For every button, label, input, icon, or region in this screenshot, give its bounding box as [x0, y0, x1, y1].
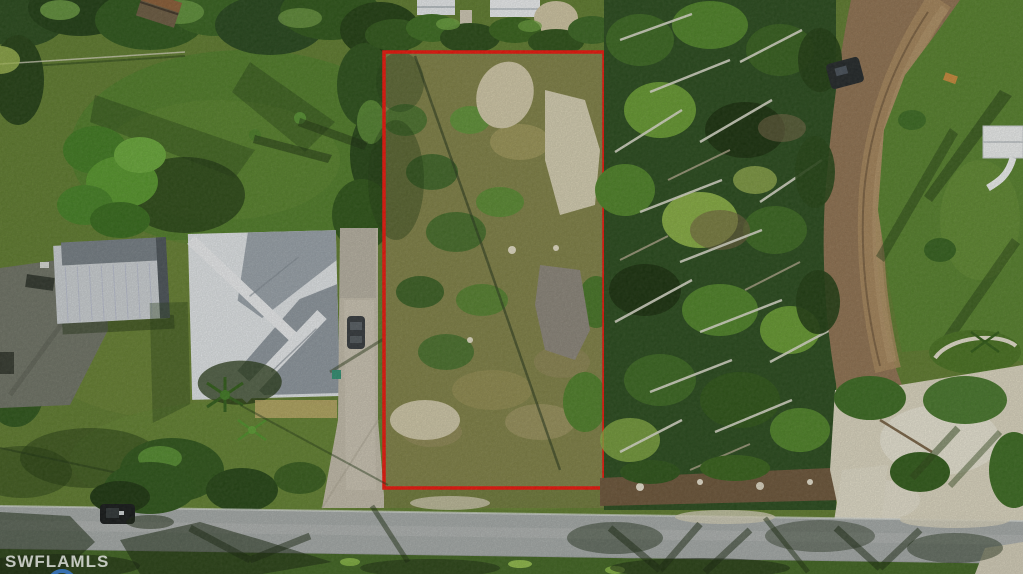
aerial-photo-canvas: SWFLAMLS	[0, 0, 1023, 574]
mls-watermark: SWFLAMLS	[5, 552, 109, 574]
watermark-text: SWFLAMLS	[5, 552, 109, 571]
aerial-photo: SWFLAMLS	[0, 0, 1023, 574]
film-grain	[0, 0, 1023, 574]
